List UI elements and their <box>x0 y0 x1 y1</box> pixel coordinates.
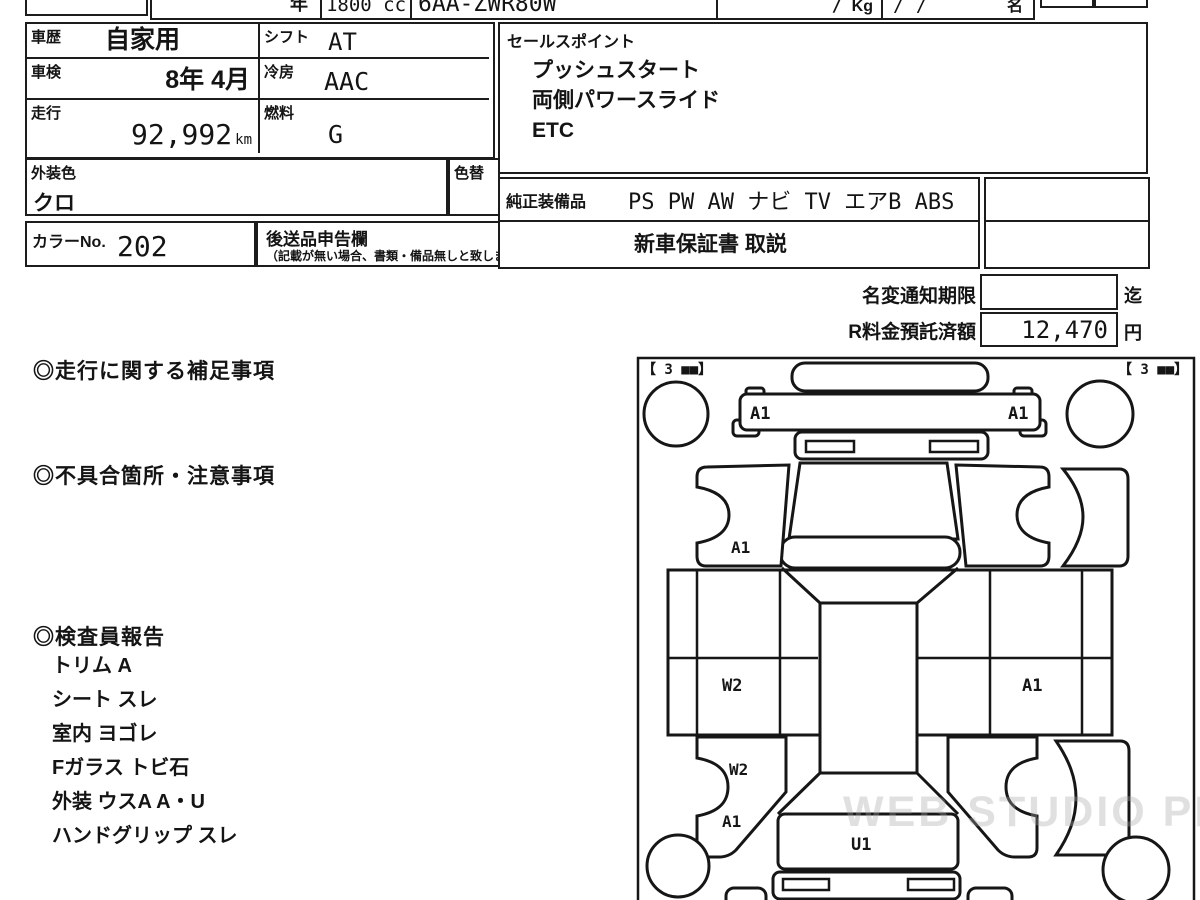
exterior-color-label: 外装色 <box>31 162 76 183</box>
mileage-value: 92,992 <box>131 118 232 153</box>
deposit-label: R料金預託済額 <box>780 317 976 344</box>
report-item: トリム A <box>52 649 238 683</box>
report-item: Fガラス トビ石 <box>52 751 238 785</box>
model-code-value: 6AA-ZWR80W <box>418 0 556 17</box>
equipment-row: 純正装備品 PS PW AW ナビ TV エアB ABS <box>500 179 978 220</box>
wheel-rear-right <box>1103 837 1169 900</box>
windshield-roof-group <box>780 463 960 568</box>
sales-points-list: プッシュスタート 両側パワースライド ETC <box>532 56 720 146</box>
vehicle-info-table: 車歴 自家用 シフト AT 車検 8年 4月 冷房 AAC 走行 92,992 … <box>25 22 495 159</box>
equipment-empty-row <box>986 179 1148 220</box>
deposit-value: 12,470 <box>1021 316 1108 344</box>
top-right-small-box-1 <box>1040 0 1094 8</box>
top-left-empty-box <box>25 0 148 16</box>
diagram-label-front-bumper-left: A1 <box>750 404 770 424</box>
consignment-note: （記載が無い場合、書類・備品無しと致します） <box>266 247 530 264</box>
sales-points-box: セールスポイント プッシュスタート 両側パワースライド ETC <box>498 22 1148 174</box>
report-item: シート スレ <box>52 683 238 717</box>
diagram-label-front-bumper-right: A1 <box>1008 404 1028 424</box>
warranty-row: 新車保証書 取説 <box>500 220 978 263</box>
equipment-label: 純正装備品 <box>500 188 628 212</box>
equipment-table: 純正装備品 PS PW AW ナビ TV エアB ABS 新車保証書 取説 <box>498 177 980 269</box>
rename-deadline-label: 名変通知期限 <box>780 281 976 308</box>
mileage-cell: 走行 92,992 km <box>27 98 258 153</box>
report-item: 室内 ヨゴレ <box>52 717 238 751</box>
inspector-report-list: トリム A シート スレ 室内 ヨゴレ Fガラス トビ石 外装 ウスA A・U … <box>52 649 238 853</box>
displacement-cell: 1800 cc <box>320 0 412 20</box>
rename-deadline-box <box>980 274 1118 310</box>
fuel-cell: 燃料 G <box>258 98 489 153</box>
equipment-value: PS PW AW ナビ TV エアB ABS <box>628 184 954 216</box>
car-condition-diagram: 【 3 ■■】 【 3 ■■】 A1 A1 A1 W2 A1 W2 A1 U1 <box>628 350 1200 900</box>
shift-cell: シフト AT <box>258 24 489 57</box>
exterior-color-cell: 外装色 クロ <box>25 158 448 216</box>
diagram-label-rear-quarter-left: W2 <box>729 760 748 779</box>
sales-points-label: セールスポイント <box>507 28 635 52</box>
equipment-empty-box <box>984 177 1150 269</box>
capacity-unit: 名 <box>1007 0 1023 16</box>
diagram-corner-left: 【 3 ■■】 <box>642 362 712 378</box>
weight-value: / <box>832 0 844 16</box>
deposit-box: 12,470 <box>980 312 1118 347</box>
color-no-value: 202 <box>117 230 168 263</box>
color-change-cell: 色替 <box>448 158 500 216</box>
diagram-label-rear-gate: U1 <box>851 835 871 855</box>
diagram-label-rear-corner-left: A1 <box>722 812 741 831</box>
report-item: 外装 ウスA A・U <box>52 785 238 819</box>
deposit-unit: 円 <box>1124 319 1142 345</box>
capacity-cell: / / 名 <box>881 0 1035 20</box>
equipment-empty-row <box>986 220 1148 263</box>
inspection-value: 8年 4月 <box>165 60 258 98</box>
year-cell: 年 <box>150 0 322 20</box>
sales-point-item: ETC <box>532 116 720 146</box>
color-no-label: カラーNo. <box>32 228 106 252</box>
diagram-corner-right: 【 3 ■■】 <box>1118 362 1188 378</box>
top-right-small-box-2 <box>1094 0 1148 8</box>
sales-point-item: 両側パワースライド <box>532 86 720 116</box>
aircon-cell: 冷房 AAC <box>258 57 489 98</box>
diagram-label-door-right: A1 <box>1022 676 1042 696</box>
capacity-value: / / <box>893 0 927 16</box>
inspection-label: 車検 <box>31 61 61 82</box>
year-label: 年 <box>290 0 308 16</box>
section-defects: ◎不具合箇所・注意事項 <box>33 460 275 490</box>
history-cell: 車歴 自家用 <box>27 24 258 57</box>
front-bumper-group <box>733 363 1046 459</box>
inspection-cell: 車検 8年 4月 <box>27 57 258 98</box>
fuel-value: G <box>260 120 343 153</box>
exterior-color-value: クロ <box>33 187 75 217</box>
sales-point-item: プッシュスタート <box>532 56 720 86</box>
auction-sheet: 年 1800 cc 6AA-ZWR80W / Kg / / 名 車歴 自家用 シ… <box>0 0 1200 900</box>
model-code-cell: 6AA-ZWR80W <box>410 0 718 20</box>
section-mileage-notes: ◎走行に関する補足事項 <box>33 355 275 385</box>
report-item: ハンドグリップ スレ <box>52 819 238 853</box>
rename-deadline-suffix: 迄 <box>1124 282 1142 308</box>
wheel-front-right <box>1067 381 1133 447</box>
diagram-label-door-left: W2 <box>722 676 742 696</box>
weight-cell: / Kg <box>716 0 883 20</box>
wheel-front-left <box>644 382 708 446</box>
mileage-label: 走行 <box>31 102 61 123</box>
aircon-label: 冷房 <box>264 61 294 82</box>
wheel-rear-left <box>647 835 709 897</box>
cabin-column-group <box>778 568 958 814</box>
section-inspector: ◎検査員報告 <box>33 621 165 651</box>
color-change-label: 色替 <box>454 162 484 183</box>
diagram-label-front-fender-left: A1 <box>731 538 750 557</box>
mileage-unit: km <box>232 132 258 153</box>
color-no-cell: カラーNo. 202 <box>25 221 256 267</box>
history-label: 車歴 <box>31 26 61 47</box>
warranty-value: 新車保証書 取説 <box>634 228 787 258</box>
shift-label: シフト <box>264 26 309 47</box>
fuel-label: 燃料 <box>264 102 294 123</box>
history-value: 自家用 <box>105 20 180 57</box>
displacement-value: 1800 cc <box>326 0 406 16</box>
weight-unit: Kg <box>852 0 873 16</box>
rear-gate-group <box>726 814 1012 900</box>
